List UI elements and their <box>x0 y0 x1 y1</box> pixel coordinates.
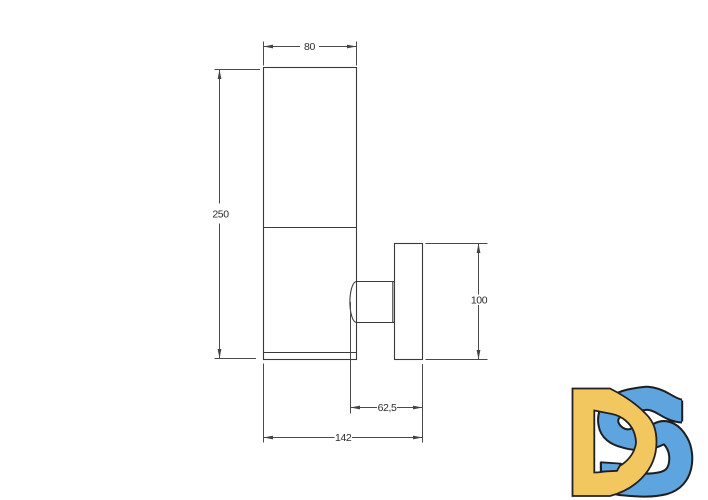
svg-text:80: 80 <box>304 41 315 53</box>
svg-text:100: 100 <box>471 295 488 307</box>
svg-text:142: 142 <box>335 432 352 444</box>
svg-text:250: 250 <box>212 209 229 221</box>
svg-text:62,5: 62,5 <box>378 402 397 414</box>
